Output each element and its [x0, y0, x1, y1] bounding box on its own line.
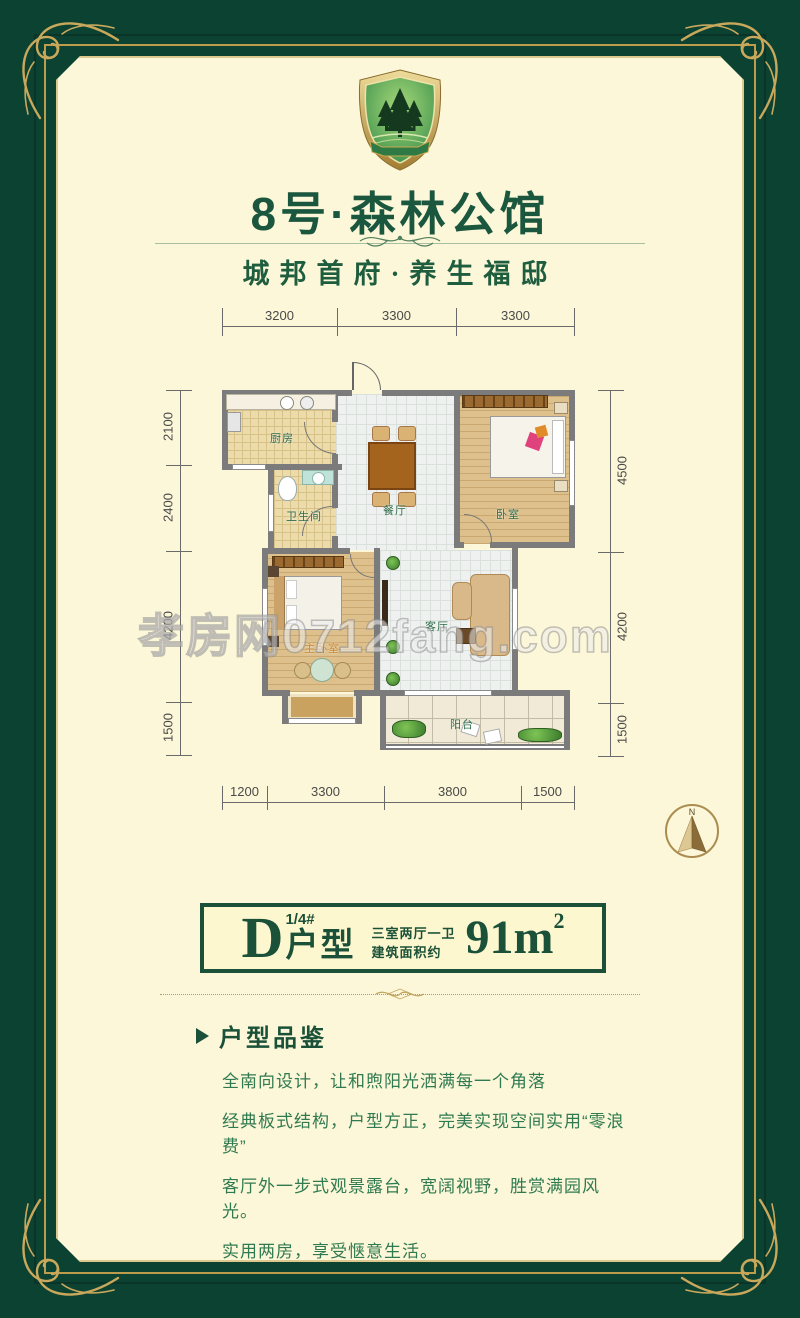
- dim-top-2: 3300: [337, 308, 456, 323]
- kitchen-window: [232, 464, 266, 470]
- dim-top-3: 3300: [456, 308, 575, 323]
- bathroom-basin: [312, 472, 325, 485]
- wall-segment: [454, 542, 464, 548]
- dining-table: [368, 442, 416, 490]
- balcony-plants: [392, 720, 426, 738]
- floor-plan: 厨房 卫生间 餐厅 卧室 主卧室 客厅 阳台: [222, 390, 575, 756]
- dining-chair: [372, 426, 390, 441]
- unit-letter: D: [242, 909, 284, 967]
- bedroom-wardrobe: [462, 395, 548, 408]
- dim-bottom-4: 1500: [521, 784, 574, 799]
- unit-number: 1/4#: [285, 912, 314, 927]
- plant: [386, 556, 400, 570]
- balcony-flowerbed: [518, 728, 562, 742]
- dim-top-1: 3200: [222, 308, 337, 323]
- dimension-column-right: 4500 4200 1500: [600, 390, 630, 757]
- master-wardrobe: [272, 556, 344, 568]
- dim-right-2: 4200: [615, 605, 630, 649]
- entry-door-leaf: [352, 362, 354, 390]
- dim-left-2: 2400: [161, 486, 176, 530]
- bed-pillows: [552, 420, 564, 474]
- dim-right-3: 1500: [615, 708, 630, 752]
- bay-window-glass: [288, 718, 356, 724]
- review-line: 客厅外一步式观景露台，宽阔视野，胜赏满园风光。: [222, 1172, 626, 1222]
- dim-right-1: 4500: [615, 449, 630, 493]
- dim-left-1: 2100: [161, 405, 176, 449]
- dimension-column-left: 2100 2400 4200 1500: [160, 390, 190, 756]
- poster: 8号·森林公馆 城邦首府·养生福邸 3200 3300 3300 2100 24…: [0, 0, 800, 1318]
- master-pillow: [286, 580, 297, 599]
- wall-segment: [454, 390, 460, 548]
- unit-type-badge: D 1/4# 户型 三室两厅一卫 建筑面积约 91m 2: [200, 903, 606, 973]
- master-nightstand: [268, 566, 279, 577]
- wall-segment: [564, 696, 570, 750]
- review-line: 全南向设计，让和煦阳光洒满每一个角落: [222, 1067, 626, 1092]
- section-divider-ornament: [372, 986, 428, 1002]
- toilet: [278, 476, 297, 501]
- dimension-row-bottom: 1200 3300 3800 1500: [222, 782, 575, 810]
- title-divider-flourish: [355, 227, 445, 249]
- unit-rooms-spec: 三室两厅一卫: [371, 924, 455, 944]
- dim-bottom-2: 3300: [267, 784, 384, 799]
- bedroom-label: 卧室: [488, 506, 528, 522]
- review-section: 户型品鉴 全南向设计，让和煦阳光洒满每一个角落 经典板式结构，户型方正，完美实现…: [196, 1018, 626, 1277]
- dim-bottom-1: 1200: [222, 784, 267, 799]
- wall-segment: [512, 690, 570, 696]
- balcony-label: 阳台: [422, 716, 502, 732]
- compass: N: [663, 802, 721, 860]
- compass-n-label: N: [689, 807, 696, 817]
- bathroom-label: 卫生间: [272, 508, 336, 524]
- fridge: [227, 412, 241, 432]
- kitchen-stove: [300, 396, 314, 410]
- unit-area-caption: 建筑面积约: [371, 943, 455, 963]
- wall-segment: [380, 696, 386, 750]
- dimension-row-top: 3200 3300 3300: [222, 306, 575, 340]
- dining-chair: [398, 426, 416, 441]
- brand-slogan: 城邦首府·养生福邸: [0, 252, 800, 291]
- triangle-bullet-icon: [196, 1028, 209, 1044]
- bay-window-floor: [288, 694, 356, 720]
- unit-area-exponent: 2: [553, 910, 564, 932]
- nightstand: [554, 480, 568, 492]
- unit-suffix: 户型: [285, 927, 355, 963]
- review-title: 户型品鉴: [219, 1018, 327, 1053]
- review-line: 实用两房，享受惬意生活。: [222, 1237, 626, 1262]
- kitchen-label: 厨房: [252, 430, 312, 446]
- watermark: 孝房网0712fang.com: [138, 600, 613, 666]
- wall-segment: [262, 548, 350, 554]
- balcony-rail-line: [386, 746, 564, 748]
- unit-area-value: 91m: [465, 914, 553, 962]
- nightstand: [554, 402, 568, 414]
- dim-left-4: 1500: [161, 706, 176, 750]
- dim-bottom-3: 3800: [384, 784, 521, 799]
- dining-label: 餐厅: [372, 502, 418, 518]
- review-header: 户型品鉴: [196, 1018, 626, 1053]
- kitchen-sink: [280, 396, 294, 410]
- bedroom-window: [569, 440, 575, 506]
- review-line: 经典板式结构，户型方正，完美实现空间实用“零浪费”: [222, 1107, 626, 1157]
- balcony-sliding-door: [404, 690, 492, 696]
- forest-shield-logo: [352, 68, 448, 172]
- plant: [386, 672, 400, 686]
- wall-segment: [490, 542, 575, 548]
